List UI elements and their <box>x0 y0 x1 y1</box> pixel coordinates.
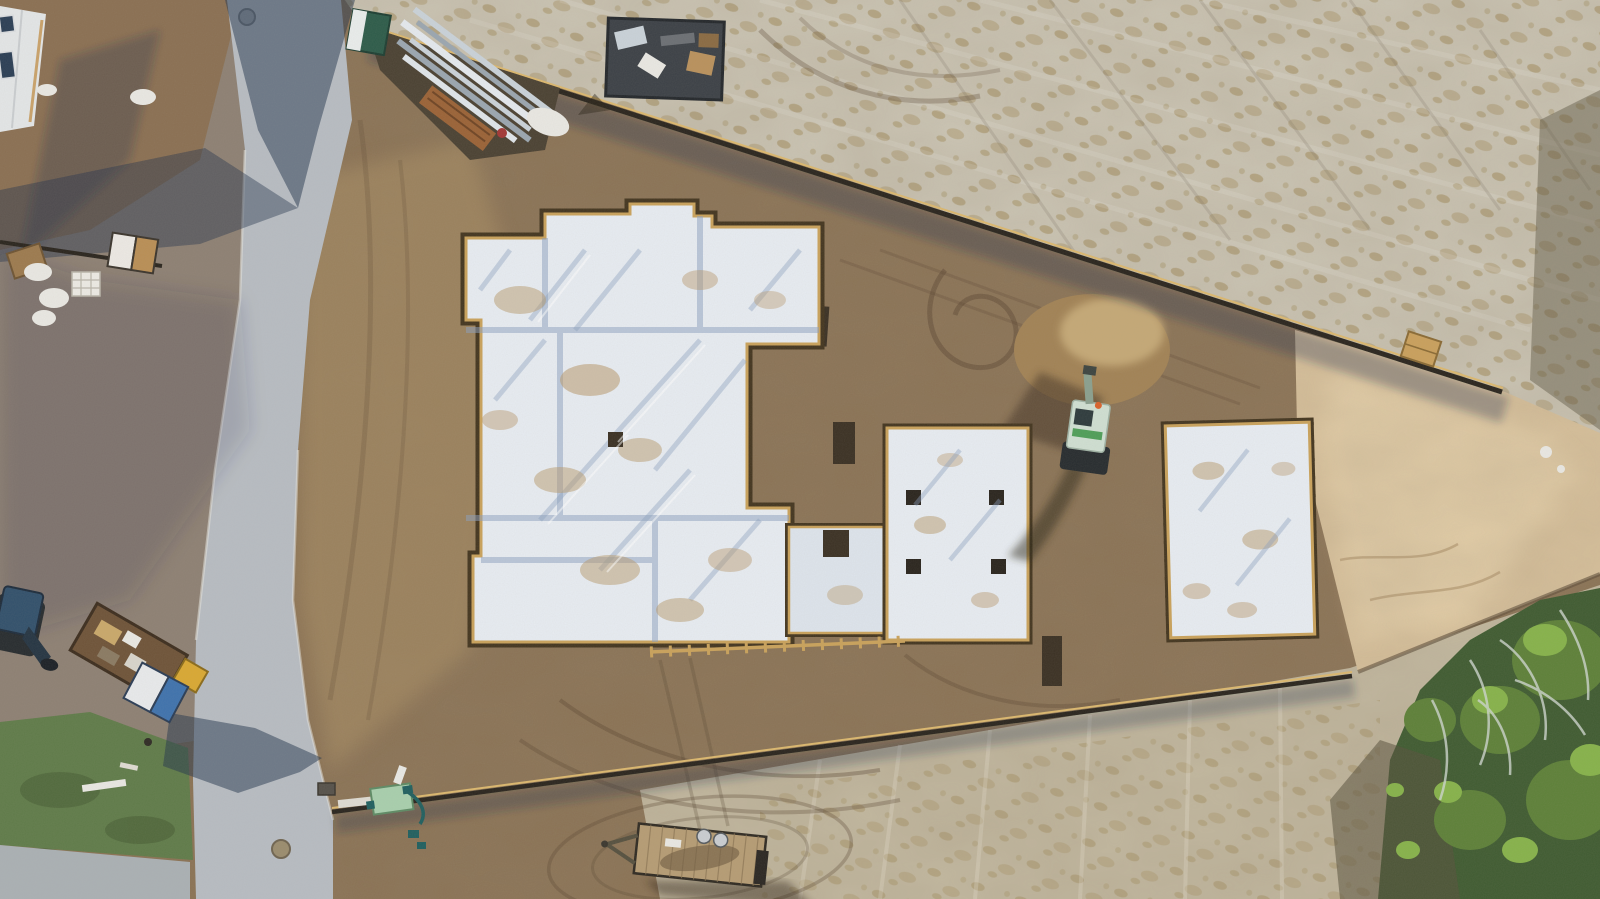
photo-grain-overlay <box>0 0 1600 899</box>
construction-site-scene <box>0 0 1600 899</box>
aerial-photo <box>0 0 1600 899</box>
